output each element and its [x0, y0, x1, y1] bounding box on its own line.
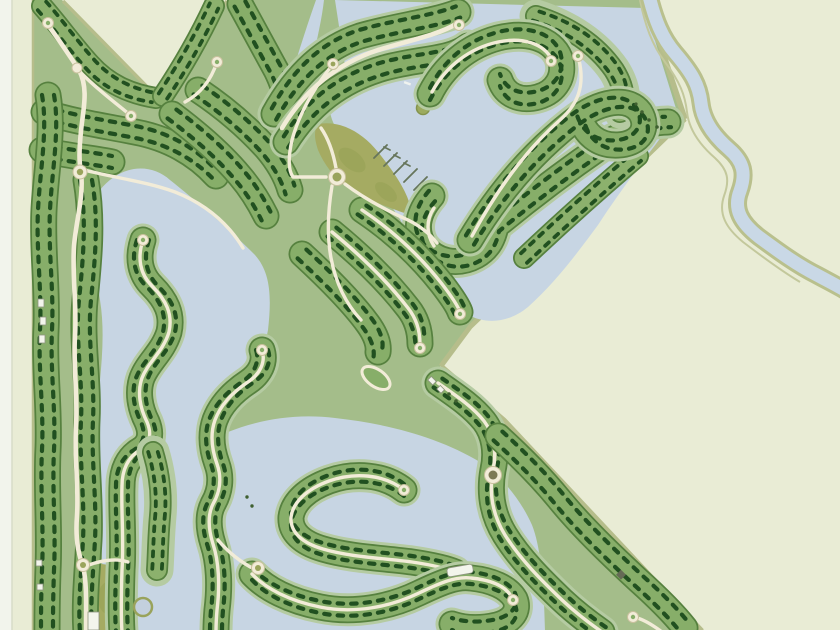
lot-strip [148, 452, 165, 570]
lot-strip [38, 95, 57, 630]
masterplan-map [0, 0, 840, 630]
fountain-pond [134, 598, 152, 616]
page-margin [0, 0, 12, 630]
masterplan-svg [0, 0, 840, 630]
